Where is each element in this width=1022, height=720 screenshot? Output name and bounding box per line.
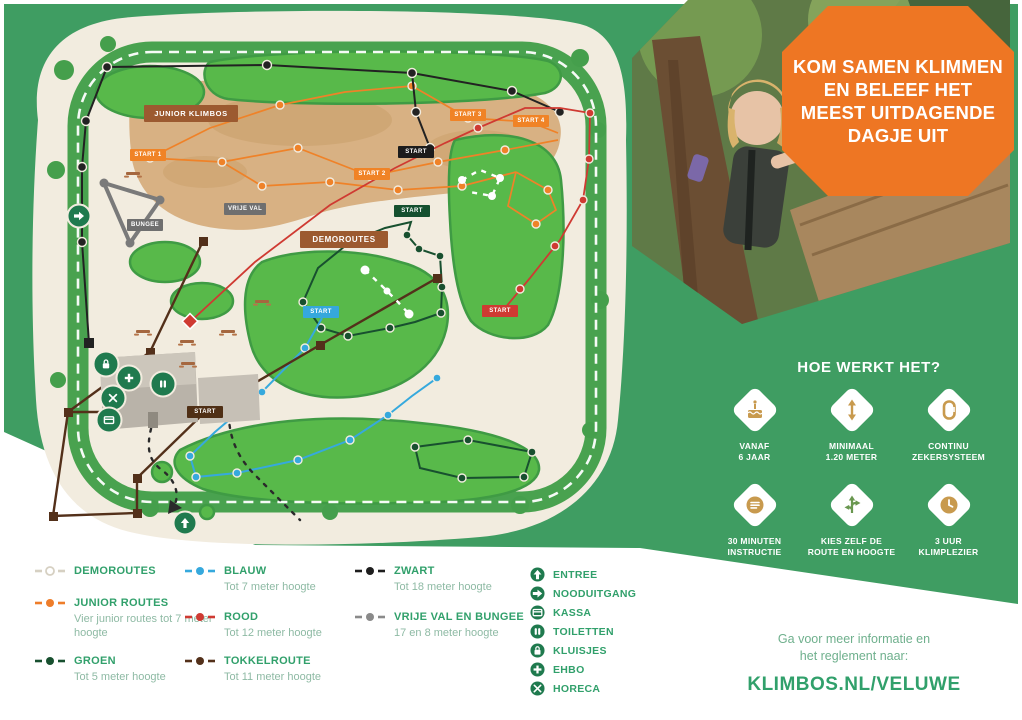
kluisjes-icon [530, 643, 545, 658]
facility-entree: ENTREE [530, 565, 636, 584]
legend-name: JUNIOR ROUTES [74, 597, 168, 609]
map-label-demoroutes: DEMOROUTES [300, 231, 388, 248]
facility-toiletten: TOILETTEN [530, 622, 636, 641]
facility-kluisjes: KLUISJES [530, 641, 636, 660]
legend-rood: ROOD Tot 12 meter hoogte [185, 611, 364, 640]
diamond-badge [924, 481, 972, 529]
diamond-badge [730, 481, 778, 529]
headline-line: KOM SAMEN KLIMMEN [793, 55, 1003, 78]
how-item-duration: 3 UURKLIMPLEZIER [900, 480, 997, 557]
horeca-icon [530, 681, 545, 696]
groen-line-icon [35, 656, 65, 666]
legend-desc: 17 en 8 meter hoogte [394, 626, 534, 640]
horeca-marker [101, 386, 126, 411]
headline-line: DAGJE UIT [848, 124, 948, 147]
toiletten-marker [151, 372, 176, 397]
legend-desc: Tot 11 meter hoogte [224, 670, 364, 684]
how-it-works-title: HOE WERKT HET? [740, 359, 998, 376]
kassa-icon [530, 605, 545, 620]
legend-name: TOKKELROUTE [224, 655, 311, 667]
facility-label: KLUISJES [553, 645, 607, 657]
how-item-route-choice: KIES ZELF DEROUTE EN HOOGTE [803, 480, 900, 557]
zwart-line-icon [355, 566, 385, 576]
map-label-junior-klimbos: JUNIOR KLIMBOS [144, 105, 238, 122]
how-item-secure: CONTINUZEKERSYSTEEM [900, 385, 997, 462]
how-it-works-row-1: VANAF6 JAAR MINIMAAL1.20 METER CONTINUZE… [706, 385, 998, 462]
facility-label: ENTREE [553, 569, 597, 581]
legend-name: ROOD [224, 611, 258, 623]
how-item-label: 3 UUR [935, 536, 962, 546]
start-label-tokkel: START [187, 406, 223, 418]
kluisjes-marker [94, 352, 119, 377]
facility-label: NOODUITGANG [553, 588, 636, 600]
map-label-vrije-val: VRIJE VAL [224, 203, 266, 215]
how-item-label: KIES ZELF DE [821, 536, 882, 546]
clock-icon [937, 493, 961, 517]
kassa-marker [97, 408, 122, 433]
vrije-val-line-icon [355, 612, 385, 622]
how-item-label: 30 MINUTEN [728, 536, 782, 546]
legend-tokkelroute: TOKKELROUTE Tot 11 meter hoogte [185, 655, 364, 684]
facility-label: KASSA [553, 607, 591, 619]
legend-vrije-val: VRIJE VAL EN BUNGEE 17 en 8 meter hoogte [355, 611, 534, 640]
legend-desc: Tot 18 meter hoogte [394, 580, 534, 594]
diamond-badge [827, 481, 875, 529]
cake-icon [743, 398, 767, 422]
nooduitgang-icon [530, 586, 545, 601]
info-line: het reglement naar: [736, 648, 972, 665]
how-item-label: VANAF [739, 441, 769, 451]
instruction-icon [743, 493, 767, 517]
demoroutes-line-icon [35, 566, 65, 576]
how-it-works-row-2: 30 MINUTENINSTRUCTIE KIES ZELF DEROUTE E… [706, 480, 998, 557]
headline-line: MEEST UITDAGENDE [801, 101, 995, 124]
junior-line-icon [35, 598, 65, 608]
start-label-zwart: START [398, 146, 434, 158]
legend-name: GROEN [74, 655, 116, 667]
park-map [32, 11, 626, 545]
info-block: Ga voor meer informatie en het reglement… [736, 631, 972, 696]
legend-name: BLAUW [224, 565, 266, 577]
website-url[interactable]: KLIMBOS.NL/VELUWE [736, 674, 972, 696]
min-height-icon [840, 398, 864, 422]
route-choice-icon [840, 493, 864, 517]
facility-kassa: KASSA [530, 603, 636, 622]
legend-name: ZWART [394, 565, 435, 577]
legend-demoroutes: DEMOROUTES [35, 565, 156, 577]
legend-facilities: ENTREE NOODUITGANG KASSA TOILETTEN KLUIS… [530, 565, 636, 698]
start-label-groen: START [394, 205, 430, 217]
facility-label: HORECA [553, 683, 600, 695]
rood-line-icon [185, 612, 215, 622]
entree-icon [530, 567, 545, 582]
legend-zwart: ZWART Tot 18 meter hoogte [355, 565, 534, 594]
start-label-junior-2: START 2 [354, 168, 390, 180]
facility-label: TOILETTEN [553, 626, 614, 638]
blauw-line-icon [185, 566, 215, 576]
how-item-age: VANAF6 JAAR [706, 385, 803, 462]
diamond-badge [924, 386, 972, 434]
start-label-junior-1: START 1 [130, 149, 166, 161]
facility-label: EHBO [553, 664, 585, 676]
facility-nooduitgang: NOODUITGANG [530, 584, 636, 603]
facility-ehbo: EHBO [530, 660, 636, 679]
tokkel-line-icon [185, 656, 215, 666]
entree-marker-west [68, 205, 91, 228]
carabiner-icon [937, 398, 961, 422]
entree-marker-south [174, 512, 197, 535]
start-label-junior-3: START 3 [450, 109, 486, 121]
diamond-badge [730, 386, 778, 434]
start-label-junior-4: START 4 [513, 115, 549, 127]
how-item-label: CONTINU [928, 441, 969, 451]
ehbo-icon [530, 662, 545, 677]
legend-desc: Tot 7 meter hoogte [224, 580, 364, 594]
flyer: KOM SAMEN KLIMMEN EN BELEEF HET MEEST UI… [0, 0, 1022, 720]
legend-name: DEMOROUTES [74, 565, 156, 577]
legend-name: VRIJE VAL EN BUNGEE [394, 611, 524, 623]
headline-line: EN BELEEF HET [824, 78, 973, 101]
legend-desc: Tot 12 meter hoogte [224, 626, 364, 640]
how-item-label: MINIMAAL [829, 441, 874, 451]
diamond-badge [827, 386, 875, 434]
info-line: Ga voor meer informatie en [736, 631, 972, 648]
headline-badge: KOM SAMEN KLIMMEN EN BELEEF HET MEEST UI… [782, 6, 1014, 196]
how-item-instruction: 30 MINUTENINSTRUCTIE [706, 480, 803, 557]
map-label-bungee: BUNGEE [127, 219, 163, 231]
facility-horeca: HORECA [530, 679, 636, 698]
toiletten-icon [530, 624, 545, 639]
how-item-height: MINIMAAL1.20 METER [803, 385, 900, 462]
start-label-rood: START [482, 305, 518, 317]
start-label-blauw: START [303, 306, 339, 318]
legend-blauw: BLAUW Tot 7 meter hoogte [185, 565, 364, 594]
